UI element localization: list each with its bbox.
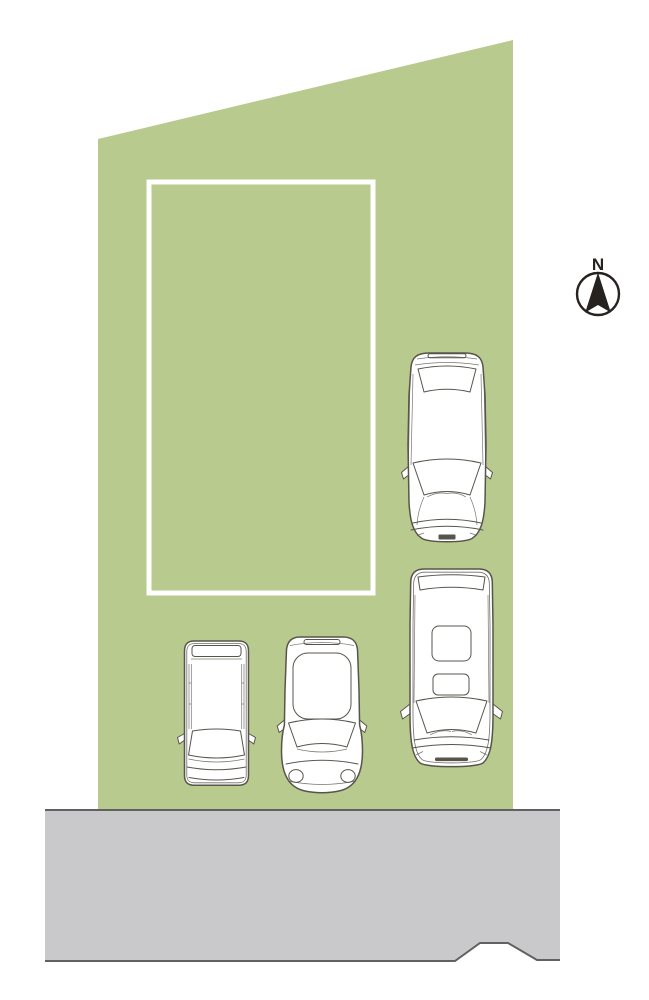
site-plan-page: N — [0, 0, 649, 1000]
road — [45, 810, 560, 961]
compass-rose: N — [577, 255, 619, 315]
kei-body — [185, 641, 249, 785]
site-plan-drawing: N — [0, 0, 649, 1000]
road-surface — [45, 810, 560, 961]
vehicle-station-wagon — [402, 353, 493, 542]
wagon-license-plate — [439, 535, 456, 540]
north-arrow-icon — [585, 273, 611, 313]
wagon-body — [408, 353, 486, 542]
vehicle-minivan — [401, 569, 503, 767]
north-label: N — [592, 255, 604, 274]
vehicle-kei-car — [178, 641, 256, 785]
minivan-grille-bar — [435, 758, 468, 762]
compact-body — [282, 637, 363, 793]
vehicle-compact-car — [277, 637, 367, 793]
